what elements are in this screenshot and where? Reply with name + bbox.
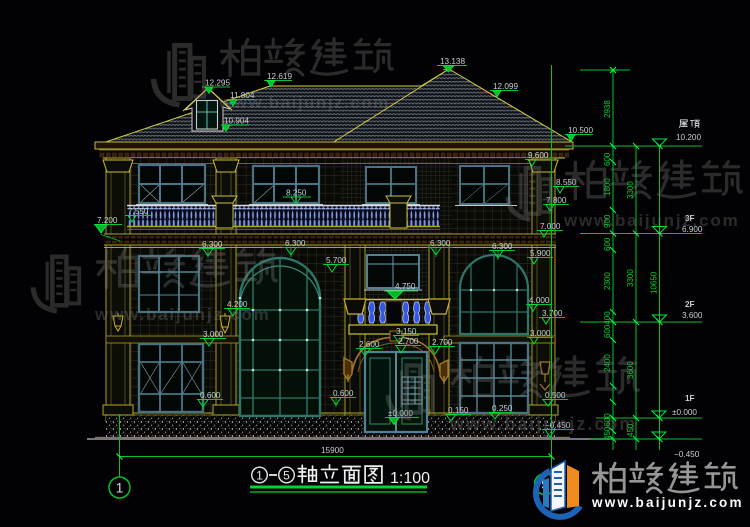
svg-text:www.baijunjz.com: www.baijunjz.com [563,211,740,230]
svg-text:−0.450: −0.450 [674,450,700,459]
svg-text:2.600: 2.600 [359,340,380,349]
svg-text:8.250: 8.250 [286,189,307,198]
svg-text:2.700: 2.700 [432,338,453,347]
svg-text:10.904: 10.904 [224,117,249,126]
svg-text:3.600: 3.600 [682,311,703,320]
svg-text:1: 1 [256,469,263,483]
svg-text:0.600: 0.600 [333,389,354,398]
svg-text:7.000: 7.000 [540,222,561,231]
svg-text:7.200: 7.200 [97,216,118,225]
svg-text:12.099: 12.099 [493,82,518,91]
svg-text:7.800: 7.800 [546,196,567,205]
svg-text:2F: 2F [685,300,695,309]
svg-text:4.750: 4.750 [395,282,416,291]
svg-text:600400: 600400 [603,311,612,338]
svg-text:www.baijunjz.com: www.baijunjz.com [449,414,637,434]
svg-text:3.150: 3.150 [396,327,417,336]
svg-text:2300: 2300 [603,272,612,290]
svg-text:0.600: 0.600 [200,391,221,400]
svg-text:5.900: 5.900 [530,249,551,258]
svg-text:5.700: 5.700 [326,256,347,265]
svg-text:1: 1 [116,480,124,496]
svg-text:2.700: 2.700 [398,337,419,346]
svg-text:6.300: 6.300 [285,239,306,248]
svg-text:6.300: 6.300 [492,242,513,251]
svg-text:www.baijunjz.com: www.baijunjz.com [591,495,744,510]
svg-text:7.550: 7.550 [128,207,149,216]
svg-text:6.300: 6.300 [430,239,451,248]
svg-text:3300: 3300 [626,269,635,287]
svg-text:10650: 10650 [650,271,659,294]
svg-text:4.000: 4.000 [529,296,550,305]
svg-text:10.500: 10.500 [568,126,593,135]
svg-text:15900: 15900 [321,446,344,455]
svg-text:1F: 1F [685,394,695,403]
svg-text:3.000: 3.000 [203,330,224,339]
svg-text:12.619: 12.619 [267,72,292,81]
svg-text:www.baijunjz.com: www.baijunjz.com [94,305,271,324]
svg-text:6.300: 6.300 [202,240,223,249]
svg-text:600: 600 [603,152,612,166]
svg-text:12.295: 12.295 [205,79,230,88]
svg-text:3.000: 3.000 [530,329,551,338]
svg-text:5: 5 [283,469,290,483]
svg-text:600: 600 [603,237,612,251]
svg-text:±0.000: ±0.000 [672,408,697,417]
svg-text:2938: 2938 [603,100,612,118]
svg-text:3.700: 3.700 [542,309,563,318]
svg-text:9.600: 9.600 [528,151,549,160]
svg-text:1:100: 1:100 [390,470,430,487]
svg-text:13.138: 13.138 [440,57,465,66]
svg-text:0.250: 0.250 [492,404,513,413]
svg-text:www.baijunjz.com: www.baijunjz.com [218,93,390,112]
svg-text:10.200: 10.200 [676,133,701,142]
